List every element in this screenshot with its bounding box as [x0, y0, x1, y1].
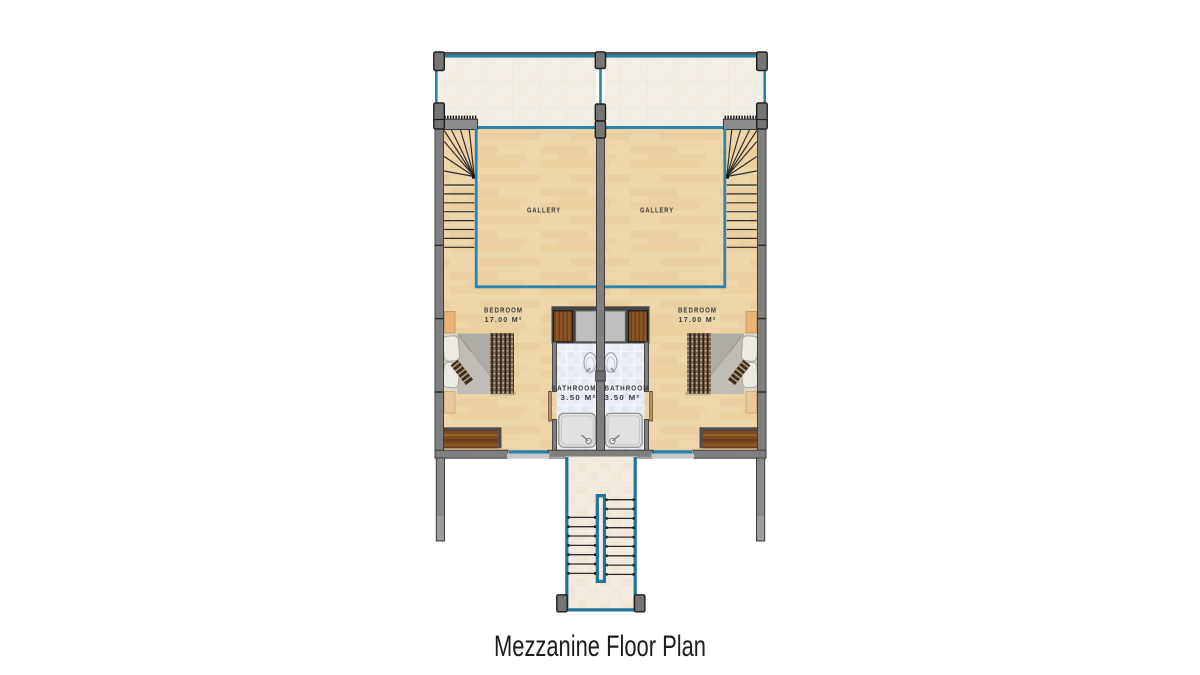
svg-text:BATHROOM: BATHROOM — [552, 383, 597, 392]
svg-text:BEDROOM: BEDROOM — [484, 306, 523, 315]
svg-text:17.00 M²: 17.00 M² — [485, 315, 523, 324]
svg-text:BEDROOM: BEDROOM — [678, 306, 717, 315]
svg-text:Mezzanine Floor Plan: Mezzanine Floor Plan — [494, 630, 706, 663]
svg-text:GALLERY: GALLERY — [527, 205, 561, 214]
svg-text:3.50 M²: 3.50 M² — [561, 393, 597, 402]
svg-text:17.00 M²: 17.00 M² — [679, 315, 717, 324]
svg-text:GALLERY: GALLERY — [640, 205, 674, 214]
svg-text:BATHROOM: BATHROOM — [605, 383, 650, 392]
svg-text:3.50 M²: 3.50 M² — [605, 393, 641, 402]
